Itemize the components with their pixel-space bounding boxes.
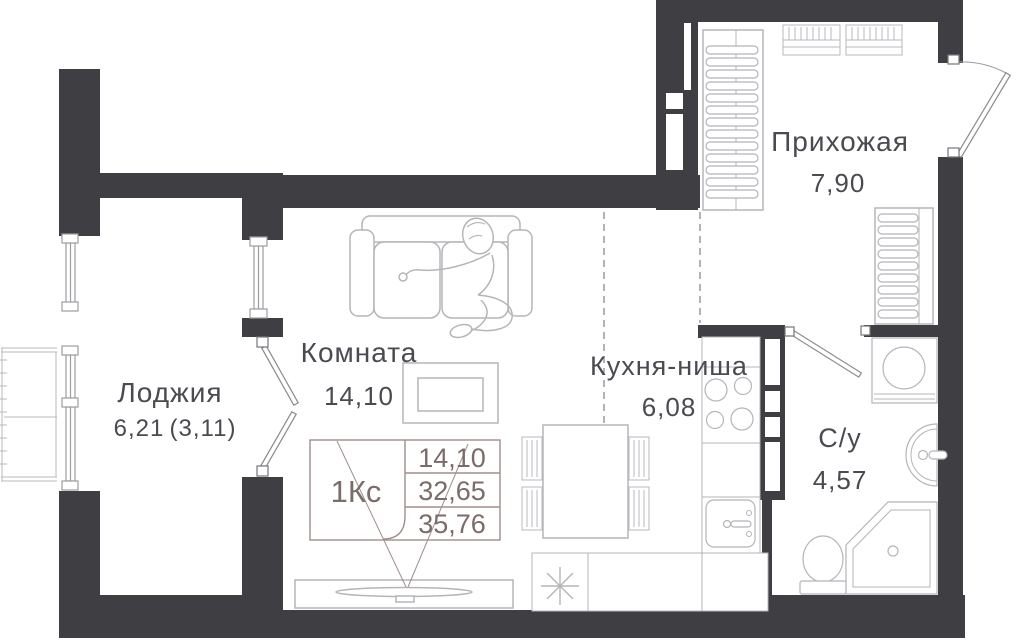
chair-icon xyxy=(629,437,649,480)
bathroom-door-icon xyxy=(785,326,870,377)
room-area-loggia: 6,21 xyxy=(114,415,165,442)
shaft-slot xyxy=(765,391,780,412)
wall-segment xyxy=(243,175,700,208)
coffee-table-icon xyxy=(403,363,498,423)
shaft-slot xyxy=(684,23,691,90)
shaft-slot xyxy=(666,114,683,170)
room-area-bathroom: 4,57 xyxy=(813,465,868,495)
loggia-exterior-glazing xyxy=(0,348,57,481)
wall-segment xyxy=(938,0,963,63)
wall-segment xyxy=(242,318,283,337)
wall-segment xyxy=(864,325,938,337)
tv-stand-icon xyxy=(295,580,513,608)
wall-segment xyxy=(768,595,965,638)
wall-segment xyxy=(698,325,765,338)
shoe-shelf-icon xyxy=(783,25,840,55)
loggia-window-left-1 xyxy=(62,234,78,311)
chair-icon xyxy=(629,487,649,530)
floor-plan: Прихожая 7,90 Комната 14,10 Кухня-ниша 6… xyxy=(0,0,1023,644)
room-label-kitchen: Кухня-ниша xyxy=(590,351,748,381)
room-loggia-window xyxy=(250,237,267,318)
loggia-door-icon xyxy=(257,337,298,476)
loggia-window-left-2 xyxy=(62,346,78,490)
room-area-kitchen: 6,08 xyxy=(642,392,697,422)
floor-plan-svg: Прихожая 7,90 Комната 14,10 Кухня-ниша 6… xyxy=(0,0,1023,644)
wall-segment xyxy=(242,477,283,610)
room-area-room: 14,10 xyxy=(324,381,394,411)
wardrobe-icon xyxy=(703,30,763,210)
shaft-slot xyxy=(765,417,780,437)
shower-icon xyxy=(846,502,937,594)
wall-segment xyxy=(657,0,963,22)
dining-table-icon xyxy=(543,425,628,538)
wall-segment xyxy=(59,69,100,236)
room-label-hallway: Прихожая xyxy=(771,126,909,157)
wall-segment xyxy=(938,157,963,595)
living-area-value: 14,10 xyxy=(418,443,486,473)
wall-segment xyxy=(59,595,260,638)
room-label-room: Комната xyxy=(301,337,418,368)
chair-icon xyxy=(522,437,542,480)
room-label-bathroom: С/у xyxy=(818,423,862,453)
total-area-value: 35,76 xyxy=(418,509,486,539)
wall-segment xyxy=(258,610,770,638)
room-label-loggia: Лоджия xyxy=(117,377,222,408)
shoe-shelf-icon xyxy=(846,25,902,55)
washing-machine-icon xyxy=(872,338,937,403)
shaft-slot xyxy=(765,442,780,491)
area-no-loggia-value: 32,65 xyxy=(418,476,486,506)
chair-icon xyxy=(522,487,542,530)
shaft-slot xyxy=(666,93,683,109)
toilet-icon xyxy=(800,536,846,594)
entrance-door-icon xyxy=(948,55,1010,157)
wardrobe-icon xyxy=(875,208,933,324)
room-area-loggia-coeff: (3,11) xyxy=(170,415,237,442)
shaft-slot xyxy=(765,339,780,385)
room-area-hallway: 7,90 xyxy=(811,168,866,198)
unit-type-label: 1Кс xyxy=(331,474,382,509)
kitchen-sink-icon xyxy=(706,500,755,547)
